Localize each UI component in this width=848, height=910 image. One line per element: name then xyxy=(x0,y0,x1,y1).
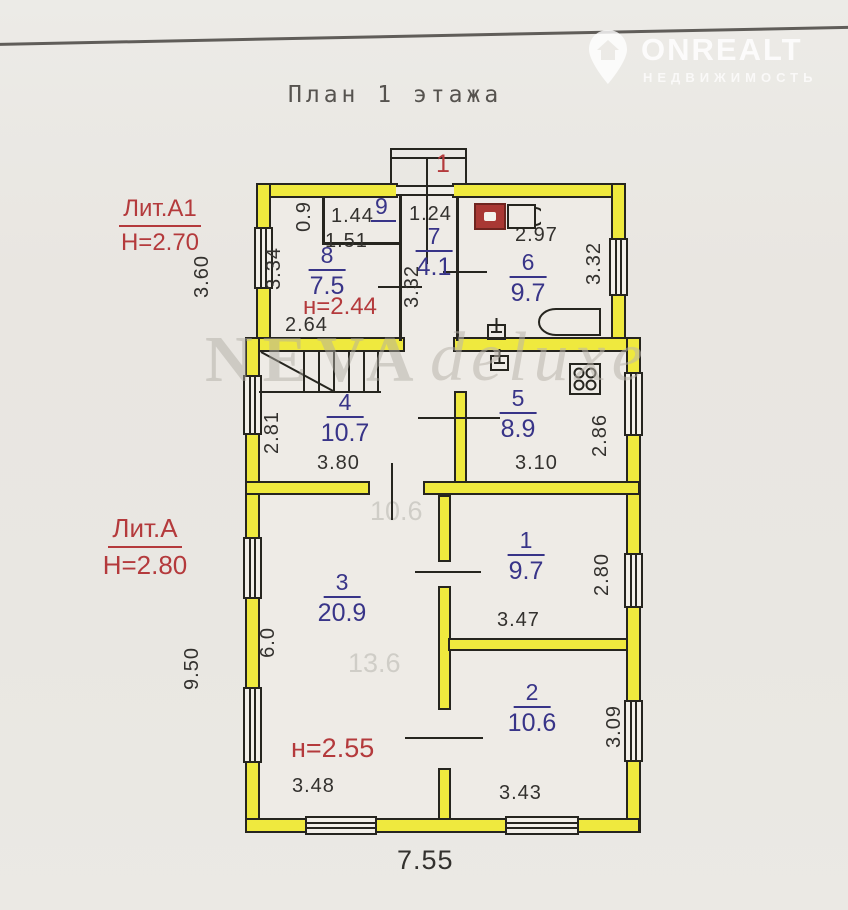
logo-brand-text: ONREALT xyxy=(641,32,803,68)
wall xyxy=(453,337,640,352)
wall xyxy=(438,495,451,562)
window xyxy=(624,700,643,762)
dimension: 2.86 xyxy=(589,414,612,457)
floor-plan-page: ONREALT НЕДВИЖИМОСТЬ План 1 этажа 1 xyxy=(0,0,848,910)
entrance-door-opening xyxy=(396,185,454,196)
dimension: 1.24 xyxy=(409,203,452,226)
room-area: 9.7 xyxy=(508,556,545,586)
dimension: 1.44 xyxy=(331,205,374,228)
logo-subtitle-text: НЕДВИЖИМОСТЬ xyxy=(643,70,817,85)
room-label-4: 4 10.7 xyxy=(321,390,370,448)
dimension: 3.32 xyxy=(583,242,606,285)
ceiling-height-note: н=2.44 xyxy=(303,293,377,321)
room-label-2: 2 10.6 xyxy=(508,680,557,738)
room-area: 9.7 xyxy=(510,278,547,308)
dimension: 9.50 xyxy=(181,647,204,690)
dimension: 3.48 xyxy=(292,775,335,798)
room-label-3: 3 20.9 xyxy=(318,570,367,628)
room-number: 6 xyxy=(510,250,547,278)
bleed-through-text: 13.6 xyxy=(348,648,401,679)
door-line xyxy=(391,463,393,520)
dimension: 3.80 xyxy=(317,452,360,475)
window xyxy=(505,816,579,835)
window xyxy=(624,553,643,608)
room-label-9: 9 xyxy=(371,193,396,222)
room-number: 1 xyxy=(508,528,545,556)
dimension: 3.60 xyxy=(191,255,214,298)
room-area: 8.9 xyxy=(500,414,537,444)
section-height: Н=2.70 xyxy=(108,227,212,257)
window xyxy=(624,372,643,436)
room-number: 7 xyxy=(416,224,453,252)
room-area: 20.9 xyxy=(318,598,367,628)
room-number: 5 xyxy=(500,386,537,414)
window xyxy=(609,238,628,296)
bathtub-icon xyxy=(536,307,602,337)
wall xyxy=(448,638,628,651)
dimension: 3.09 xyxy=(603,705,626,748)
room-number: 2 xyxy=(514,680,551,708)
room-number: 3 xyxy=(324,570,361,598)
section-label-a: Лит.А Н=2.80 xyxy=(90,513,200,581)
window xyxy=(243,537,262,599)
wall xyxy=(245,481,370,495)
door-line xyxy=(418,417,500,419)
partition-wall xyxy=(456,196,459,341)
dimension: 3.10 xyxy=(515,452,558,475)
wall xyxy=(438,768,451,820)
dimension: 3.34 xyxy=(263,247,286,290)
section-name: Лит.А xyxy=(108,513,181,548)
sink-icon xyxy=(489,349,511,372)
room-label-1: 1 9.7 xyxy=(508,528,545,586)
onrealt-logo: ONREALT НЕДВИЖИМОСТЬ xyxy=(585,26,835,96)
sink-icon xyxy=(486,318,508,341)
location-pin-house-icon xyxy=(585,28,631,86)
stairs-icon xyxy=(259,350,381,394)
entrance-number: 1 xyxy=(436,150,450,179)
room-label-5: 5 8.9 xyxy=(500,386,537,444)
ceiling-height-note: н=2.55 xyxy=(291,733,374,764)
wall xyxy=(454,391,467,483)
dimension: 0.9 xyxy=(293,201,316,232)
page-title: План 1 этажа xyxy=(288,82,502,108)
dimension: 3.32 xyxy=(401,265,424,308)
bleed-through-text: 10.6 xyxy=(370,496,423,527)
dimension: 7.55 xyxy=(397,845,454,876)
wall xyxy=(423,481,640,495)
door-line xyxy=(405,737,483,739)
washing-machine-icon xyxy=(507,204,541,229)
section-label-a1: Лит.А1 Н=2.70 xyxy=(108,195,212,257)
dimension: 2.81 xyxy=(261,411,284,454)
dimension: 3.43 xyxy=(499,782,542,805)
section-height: Н=2.80 xyxy=(90,548,200,581)
room-label-6: 6 9.7 xyxy=(510,250,547,308)
stove-icon xyxy=(569,363,601,395)
boiler-icon xyxy=(474,203,506,230)
wall xyxy=(452,183,626,198)
porch-step-line xyxy=(390,157,467,159)
dimension: 1.51 xyxy=(325,230,368,253)
room-area: 10.6 xyxy=(508,708,557,738)
window xyxy=(243,687,262,763)
door-line xyxy=(415,571,481,573)
room-area: 10.7 xyxy=(321,418,370,448)
entrance-porch xyxy=(390,148,467,188)
dimension: 6.0 xyxy=(257,627,280,658)
dimension: 2.80 xyxy=(591,553,614,596)
section-name: Лит.А1 xyxy=(119,195,201,227)
window xyxy=(305,816,377,835)
dimension: 3.47 xyxy=(497,609,540,632)
room-number: 4 xyxy=(327,390,364,418)
